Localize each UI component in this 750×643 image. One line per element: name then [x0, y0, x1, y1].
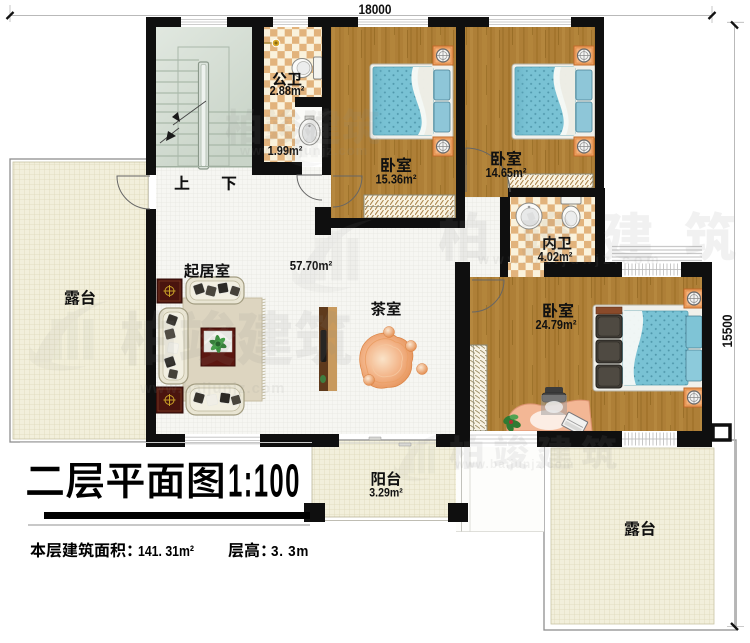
svg-text:www.baijunjz.com: www.baijunjz.com — [454, 457, 575, 471]
svg-text:18000: 18000 — [358, 1, 391, 17]
svg-text:24.79m²: 24.79m² — [536, 318, 577, 332]
svg-text:www.baijunjz.com: www.baijunjz.com — [139, 380, 285, 397]
svg-text:3. 3m: 3. 3m — [271, 543, 309, 560]
svg-text:1:100: 1:100 — [228, 455, 301, 507]
svg-text:15.36m²: 15.36m² — [376, 173, 417, 187]
svg-text:141. 31m²: 141. 31m² — [138, 543, 194, 559]
svg-text:www.baijunjz.com: www.baijunjz.com — [239, 143, 368, 158]
svg-text:www.baijunjz.com: www.baijunjz.com — [477, 251, 663, 267]
svg-text:14.65m²: 14.65m² — [486, 166, 527, 180]
svg-text:15500: 15500 — [719, 314, 735, 347]
svg-text:3.29m²: 3.29m² — [369, 487, 403, 500]
svg-text:2.88m²: 2.88m² — [270, 84, 305, 98]
